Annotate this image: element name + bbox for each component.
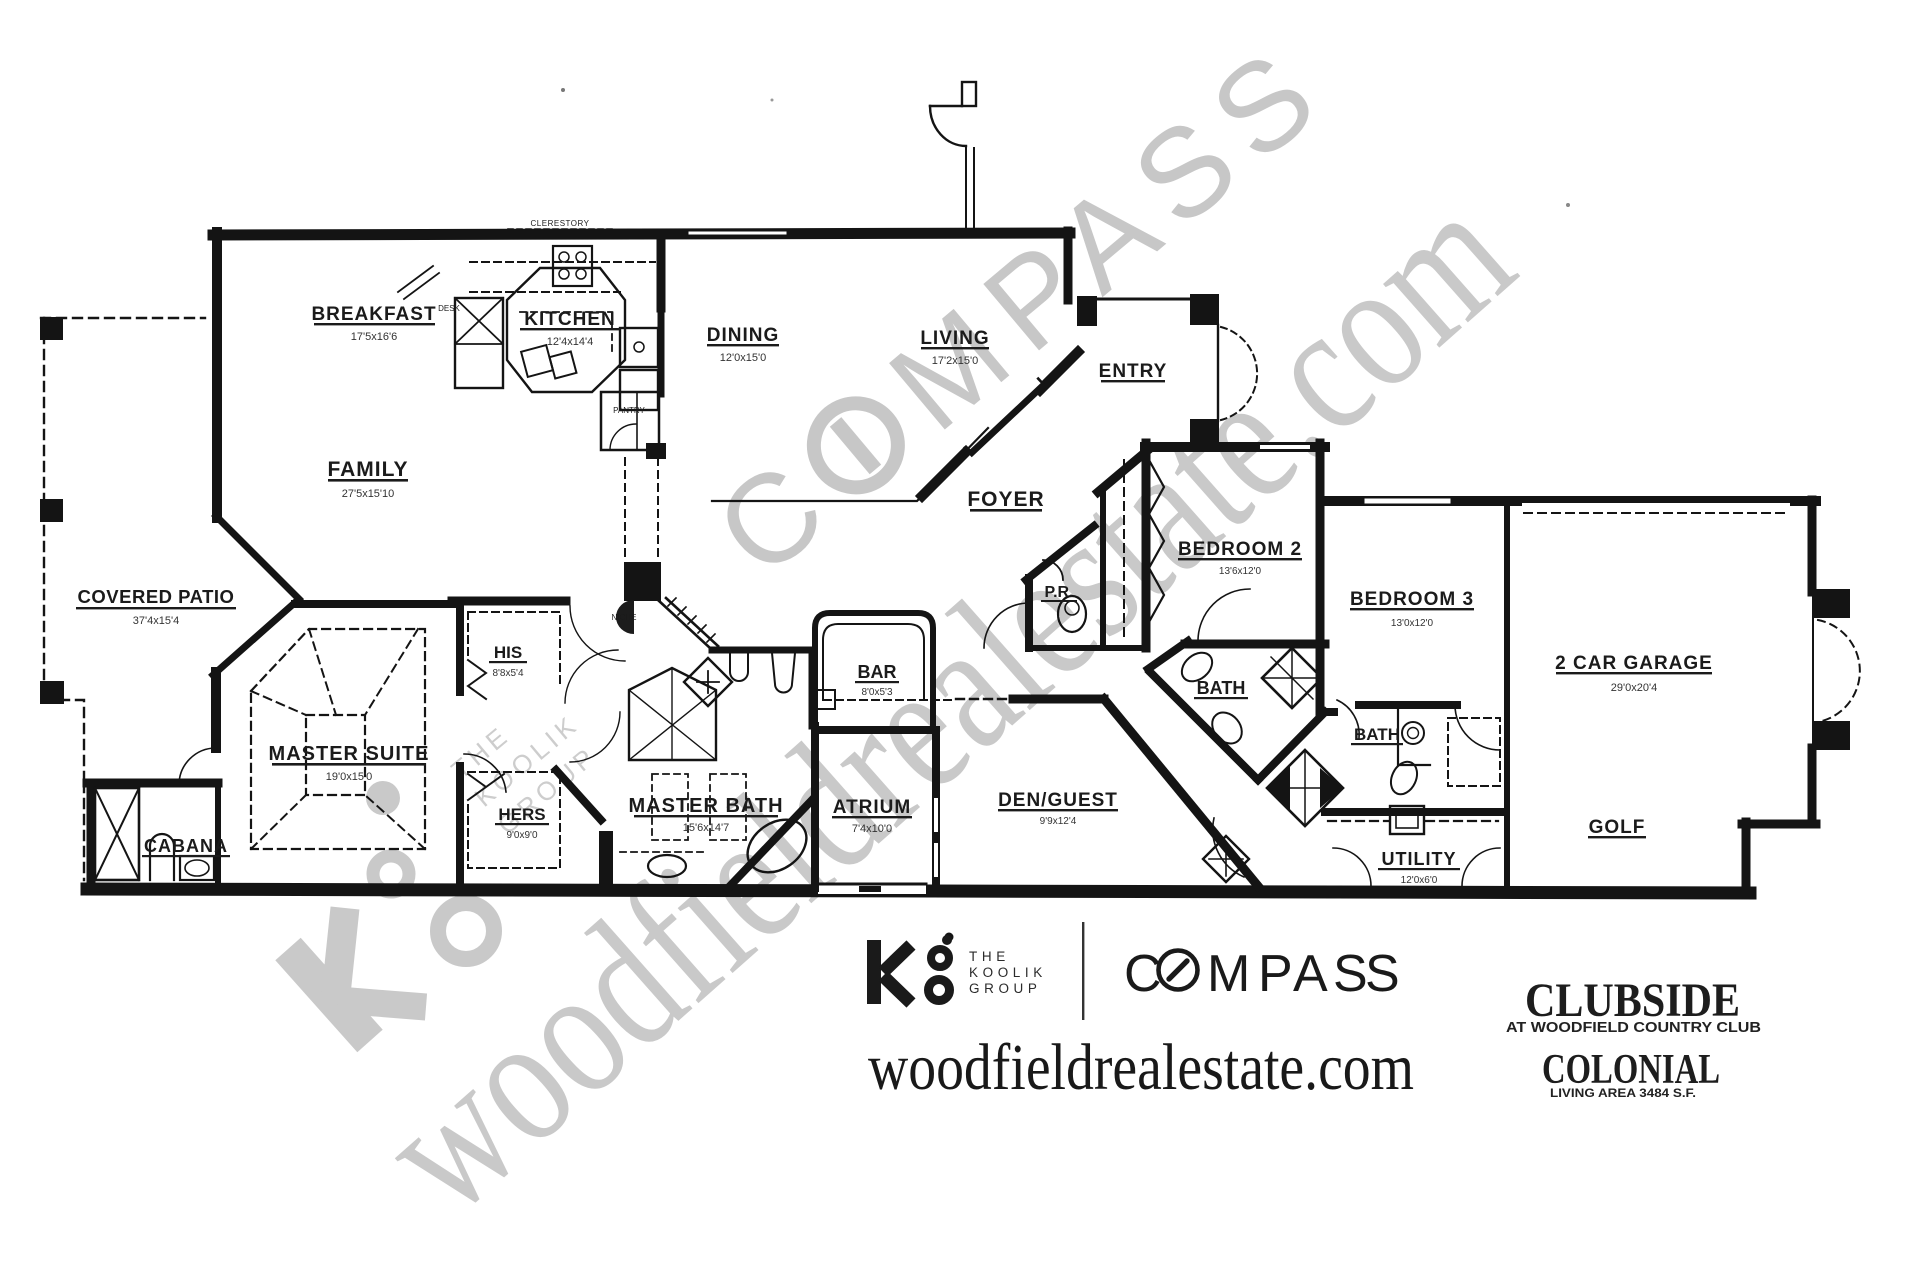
svg-text:37'4x15'4: 37'4x15'4 [133,615,179,627]
svg-text:BEDROOM 2: BEDROOM 2 [1178,539,1302,560]
svg-text:29'0x20'4: 29'0x20'4 [1611,682,1657,694]
svg-text:C: C [690,425,864,603]
svg-text:DINING: DINING [707,325,780,346]
svg-text:A: A [1293,945,1328,1003]
svg-text:8'0x5'3: 8'0x5'3 [861,687,893,698]
svg-text:DESK: DESK [438,304,460,313]
svg-text:FOYER: FOYER [967,488,1044,511]
svg-text:9'0x9'0: 9'0x9'0 [506,830,538,841]
svg-text:19'0x15'0: 19'0x15'0 [326,771,372,783]
svg-text:8'8x5'4: 8'8x5'4 [492,668,524,679]
svg-text:P.R.: P.R. [1044,584,1073,601]
svg-text:12'0x6'0: 12'0x6'0 [1401,875,1438,886]
svg-text:NICHE: NICHE [612,613,637,622]
svg-text:27'5x15'10: 27'5x15'10 [342,488,395,500]
svg-text:KOOLIK: KOOLIK [969,965,1047,980]
svg-text:AT WOODFIELD COUNTRY CLUB: AT WOODFIELD COUNTRY CLUB [1506,1020,1761,1036]
svg-text:DEN/GUEST: DEN/GUEST [998,790,1118,811]
svg-text:S: S [1365,945,1400,1003]
svg-text:HIS: HIS [494,643,522,662]
svg-text:KITCHEN: KITCHEN [524,309,615,330]
svg-text:12'4x14'4: 12'4x14'4 [547,336,593,348]
svg-text:13'0x12'0: 13'0x12'0 [1391,618,1434,629]
svg-text:GOLF: GOLF [1589,817,1646,838]
svg-text:CLERESTORY: CLERESTORY [531,219,590,228]
svg-text:FAMILY: FAMILY [327,458,408,481]
svg-text:P: P [1258,945,1293,1003]
svg-text:ENTRY: ENTRY [1099,361,1168,382]
svg-text:7'4x10'0: 7'4x10'0 [852,823,892,835]
svg-text:ATRIUM: ATRIUM [833,797,911,818]
svg-text:C: C [1124,945,1162,1003]
svg-text:BATH: BATH [1354,725,1400,744]
svg-text:15'6x14'7: 15'6x14'7 [683,822,729,834]
svg-text:LIVING AREA 3484 S.F.: LIVING AREA 3484 S.F. [1550,1086,1696,1100]
svg-text:S: S [1333,945,1368,1003]
svg-text:2 CAR GARAGE: 2 CAR GARAGE [1555,653,1713,674]
svg-text:9'9x12'4: 9'9x12'4 [1040,816,1077,827]
svg-text:THE: THE [969,949,1010,964]
svg-text:17'2x15'0: 17'2x15'0 [932,355,978,367]
svg-text:MASTER BATH: MASTER BATH [628,795,783,817]
svg-text:BREAKFAST: BREAKFAST [311,304,436,325]
svg-text:GROUP: GROUP [969,981,1042,996]
svg-text:17'5x16'6: 17'5x16'6 [351,331,397,343]
svg-text:HERS: HERS [498,805,545,824]
svg-text:UTILITY: UTILITY [1382,849,1457,869]
svg-text:woodfieldrealestate.com: woodfieldrealestate.com [868,1031,1414,1104]
svg-text:BATH: BATH [1197,678,1246,698]
svg-text:MASTER SUITE: MASTER SUITE [269,743,430,765]
svg-text:CABANA: CABANA [144,836,228,856]
svg-text:BEDROOM 3: BEDROOM 3 [1350,589,1474,610]
svg-text:13'6x12'0: 13'6x12'0 [1219,566,1262,577]
svg-text:M: M [1207,945,1250,1003]
svg-text:PANTRY: PANTRY [613,406,645,415]
svg-text:BAR: BAR [858,662,897,682]
svg-text:COVERED PATIO: COVERED PATIO [78,586,235,607]
svg-text:LIVING: LIVING [920,328,989,349]
svg-text:12'0x15'0: 12'0x15'0 [720,352,766,364]
